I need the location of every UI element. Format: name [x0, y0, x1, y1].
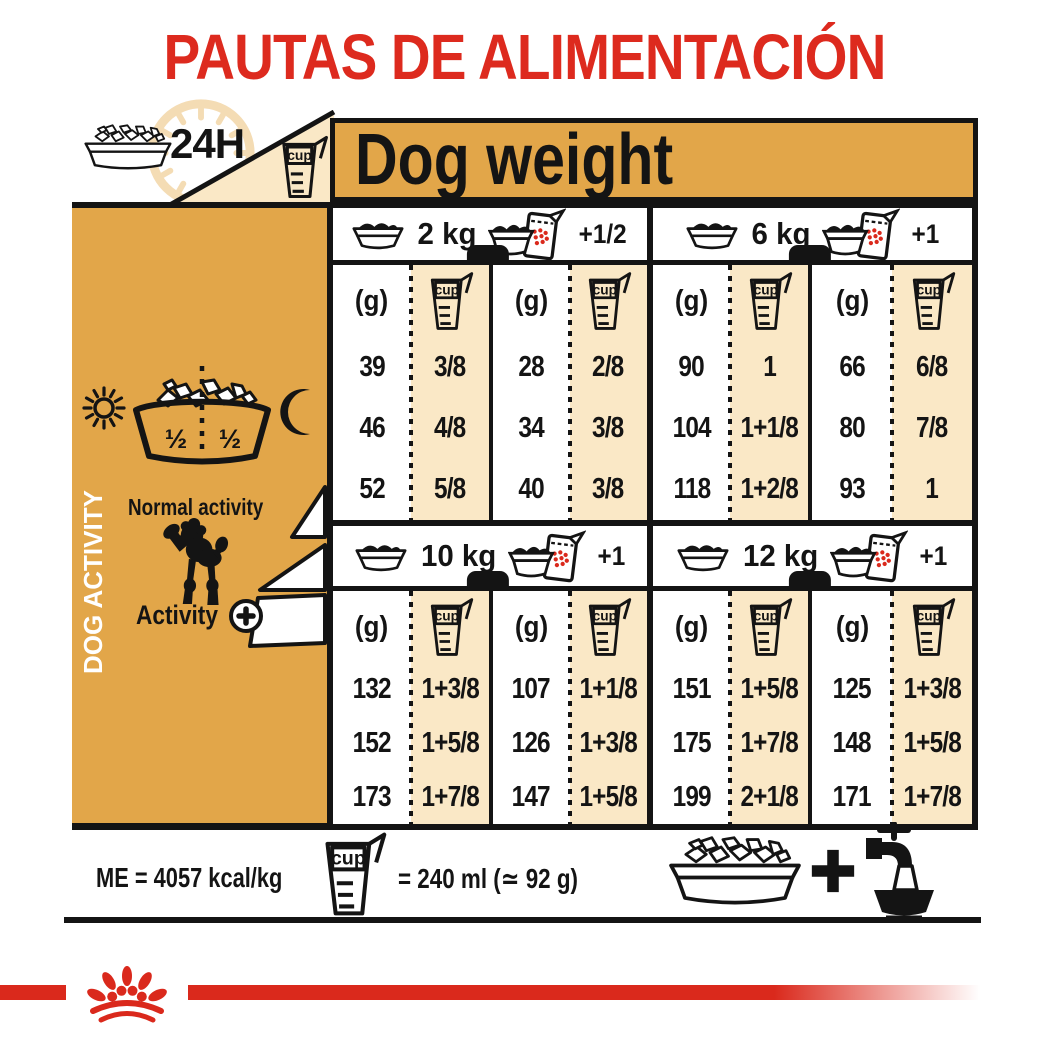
- grams-value: 107: [512, 673, 550, 706]
- water-tap-icon: [856, 822, 938, 920]
- weight-cell-6kg: 6 kg +1: [653, 208, 973, 260]
- cup-value: 3/8: [434, 351, 465, 384]
- surplus-label: +1: [598, 541, 626, 572]
- surplus-label: +1: [911, 219, 939, 250]
- bowl-icon: [350, 217, 406, 251]
- cup-value: 1+5/8: [579, 781, 636, 814]
- grams-value: 118: [673, 473, 710, 506]
- dotted-divider: [568, 265, 572, 520]
- grams-header: (g): [515, 611, 548, 644]
- dog-activity-label: DOG ACTIVITY: [78, 474, 109, 674]
- pair-10kg-a: (g) cup 132 1+3/8 152 1+5/8 173 1+7/8: [333, 591, 493, 824]
- dotted-divider: [409, 591, 413, 824]
- weight-cell-12kg: 12 kg +1: [653, 526, 973, 586]
- weight-label: 2 kg: [418, 216, 477, 252]
- brand-band-left: [0, 985, 66, 1000]
- grams-value: 175: [672, 727, 710, 760]
- weight-label: 12 kg: [743, 538, 818, 574]
- cup-value: 1+5/8: [903, 727, 960, 760]
- dog-weight-banner: Dog weight: [330, 118, 978, 202]
- cup-value: 1+5/8: [421, 727, 478, 760]
- cup-value: 5/8: [434, 473, 465, 506]
- measuring-cup-icon: cup: [314, 830, 392, 918]
- measuring-cup-icon: cup: [583, 270, 633, 332]
- cup-value: 4/8: [434, 412, 465, 445]
- poodle-icon: [158, 518, 230, 606]
- svg-text:cup: cup: [754, 283, 778, 298]
- grams-header: (g): [515, 285, 548, 318]
- dotted-divider: [728, 591, 732, 824]
- dotted-divider: [409, 265, 413, 520]
- weight-header-row-2: 10 kg +1 12 kg +1: [333, 526, 972, 591]
- cup-value: 1+1/8: [741, 412, 798, 445]
- measuring-cup-icon: cup: [425, 270, 475, 332]
- weight-label: 10 kg: [421, 538, 496, 574]
- cup-equivalence-label: = 240 ml (≃ 92 g): [398, 862, 578, 895]
- grams-value: 132: [353, 673, 391, 706]
- half-half-bowl-icon: ½ ½: [124, 364, 280, 472]
- cup-value: 1: [763, 351, 776, 384]
- tab-marker: [467, 245, 509, 260]
- sun-icon: [80, 384, 128, 432]
- cup-value: 6/8: [916, 351, 947, 384]
- data-row-1: (g) cup 39 3/8 46 4/8 52 5/8 (g) cup 28 …: [333, 265, 972, 526]
- grams-value: 34: [518, 412, 543, 445]
- grams-value: 125: [833, 673, 871, 706]
- pair-2kg-b: (g) cup 28 2/8 34 3/8 40 3/8: [493, 265, 653, 520]
- activity-level-ramp: [228, 484, 327, 656]
- grams-value: 28: [518, 351, 543, 384]
- cup-value: 1+3/8: [421, 673, 478, 706]
- measuring-cup-icon: cup: [425, 596, 475, 658]
- grams-value: 126: [512, 727, 550, 760]
- grams-header: (g): [675, 611, 708, 644]
- cup-value: 7/8: [916, 412, 947, 445]
- dotted-divider: [890, 265, 894, 520]
- moon-icon: [280, 388, 312, 436]
- measuring-cup-icon: cup: [276, 134, 330, 200]
- cup-value: 3/8: [592, 473, 623, 506]
- weight-header-row-1: 2 kg +1/2 6 kg +1: [333, 208, 972, 265]
- page-title: PAUTAS DE ALIMENTACIÓN: [73, 20, 975, 94]
- feeding-table: 2 kg +1/2 6 kg +1 (g) cup 39 3/8 46: [327, 202, 978, 830]
- grams-header: (g): [355, 285, 388, 318]
- pair-2kg-a: (g) cup 39 3/8 46 4/8 52 5/8: [333, 265, 493, 520]
- svg-text:cup: cup: [331, 848, 366, 870]
- measuring-cup-icon: cup: [907, 596, 957, 658]
- measuring-cup-icon: cup: [583, 596, 633, 658]
- brand-band-right: [188, 985, 980, 1000]
- grams-value: 173: [353, 781, 391, 814]
- grams-value: 199: [672, 781, 710, 814]
- measuring-cup-icon: cup: [907, 270, 957, 332]
- cup-value: 1: [926, 473, 939, 506]
- svg-text:cup: cup: [917, 283, 941, 298]
- svg-text:cup: cup: [593, 283, 617, 298]
- cup-value: 2/8: [592, 351, 623, 384]
- cup-value: 1+7/8: [903, 781, 960, 814]
- measuring-cup-icon: cup: [744, 596, 794, 658]
- grams-value: 152: [353, 727, 391, 760]
- pair-10kg-b: (g) cup 107 1+1/8 126 1+3/8 147 1+5/8: [493, 591, 653, 824]
- grams-header: (g): [836, 285, 869, 318]
- grams-value: 104: [672, 412, 710, 445]
- cup-value: 1+2/8: [741, 473, 798, 506]
- dog-weight-label: Dog weight: [355, 119, 673, 201]
- duration-label: 24H: [170, 120, 244, 168]
- bowl-bag-icon: [830, 529, 908, 583]
- bowl-icon: [675, 539, 731, 573]
- svg-text:½: ½: [219, 424, 242, 454]
- dotted-divider: [728, 265, 732, 520]
- cup-value: 1+7/8: [421, 781, 478, 814]
- svg-text:cup: cup: [754, 609, 778, 624]
- grams-value: 148: [833, 727, 871, 760]
- grams-value: 93: [839, 473, 864, 506]
- pair-6kg-a: (g) cup 90 1 104 1+1/8 118 1+2/8: [653, 265, 813, 520]
- grams-value: 52: [359, 473, 384, 506]
- dotted-divider: [568, 591, 572, 824]
- grams-value: 90: [679, 351, 704, 384]
- grams-header: (g): [355, 611, 388, 644]
- grams-header: (g): [675, 285, 708, 318]
- cup-value: 1+3/8: [903, 673, 960, 706]
- cup-value: 1+7/8: [741, 727, 798, 760]
- kibble-bowl-icon: [82, 120, 174, 176]
- tab-marker: [789, 245, 831, 260]
- bowl-icon: [353, 539, 409, 573]
- me-kcal-label: ME = 4057 kcal/kg: [96, 862, 282, 894]
- svg-text:cup: cup: [917, 609, 941, 624]
- kibble-bowl-icon: [660, 834, 810, 910]
- svg-text:cup: cup: [434, 283, 458, 298]
- cup-value: 1+3/8: [579, 727, 636, 760]
- svg-text:cup: cup: [287, 147, 312, 163]
- plus-icon: [808, 846, 858, 896]
- cup-value: 1+5/8: [741, 673, 798, 706]
- measuring-cup-icon: cup: [744, 270, 794, 332]
- footer-divider: [64, 917, 981, 923]
- feeding-guide-page: PAUTAS DE ALIMENTACIÓN 24H cup Dog weigh…: [0, 0, 1049, 1049]
- grams-header: (g): [836, 611, 869, 644]
- pair-12kg-a: (g) cup 151 1+5/8 175 1+7/8 199 2+1/8: [653, 591, 813, 824]
- weight-cell-10kg: 10 kg +1: [333, 526, 653, 586]
- pair-12kg-b: (g) cup 125 1+3/8 148 1+5/8 171 1+7/8: [812, 591, 972, 824]
- grams-value: 66: [839, 351, 864, 384]
- cup-value: 2+1/8: [741, 781, 798, 814]
- svg-text:cup: cup: [434, 609, 458, 624]
- grams-value: 46: [359, 412, 384, 445]
- dotted-divider: [890, 591, 894, 824]
- weight-cell-2kg: 2 kg +1/2: [333, 208, 653, 260]
- grams-value: 80: [839, 412, 864, 445]
- surplus-label: +1/2: [579, 219, 627, 250]
- svg-text:½: ½: [165, 424, 188, 454]
- grams-value: 171: [833, 781, 871, 814]
- activity-label: Activity: [136, 600, 218, 631]
- svg-text:cup: cup: [593, 609, 617, 624]
- cup-value: 1+1/8: [579, 673, 636, 706]
- grams-value: 147: [512, 781, 550, 814]
- tab-marker: [467, 571, 509, 586]
- pair-6kg-b: (g) cup 66 6/8 80 7/8 93 1: [812, 265, 972, 520]
- bowl-icon: [684, 217, 740, 251]
- data-row-2: (g) cup 132 1+3/8 152 1+5/8 173 1+7/8 (g…: [333, 591, 972, 824]
- grams-value: 39: [359, 351, 384, 384]
- tab-marker: [789, 571, 831, 586]
- cup-value: 3/8: [592, 412, 623, 445]
- grams-value: 151: [672, 673, 710, 706]
- grams-value: 40: [518, 473, 543, 506]
- bowl-bag-icon: [508, 529, 586, 583]
- dog-activity-sidebar: ½ ½ DOG ACTIVITY Normal activity: [72, 202, 327, 830]
- royal-canin-crown-icon: [66, 954, 188, 1024]
- bowl-bag-icon: [822, 207, 900, 261]
- surplus-label: +1: [920, 541, 948, 572]
